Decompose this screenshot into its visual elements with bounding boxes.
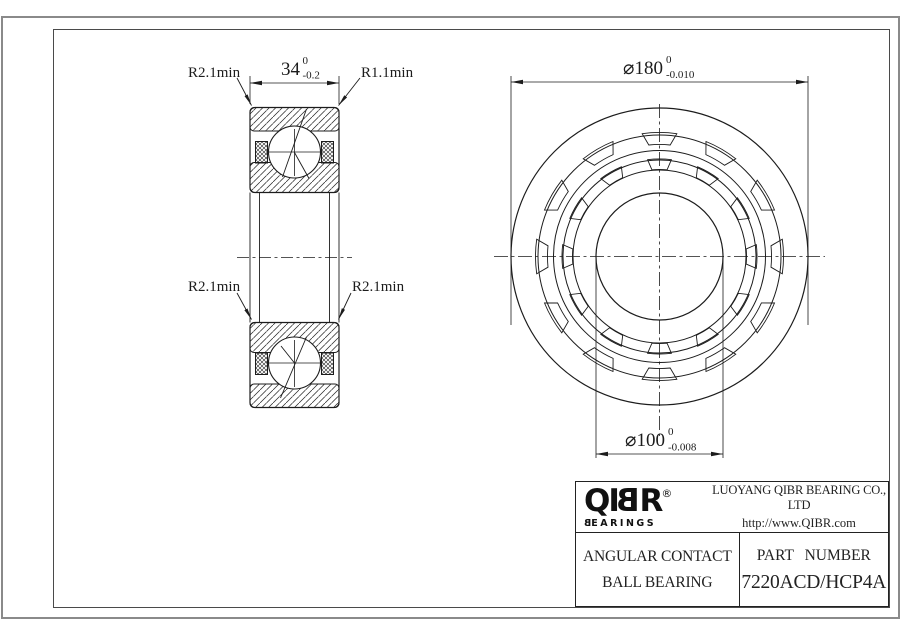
cage-pocket (706, 348, 736, 372)
cage-section-left (256, 142, 268, 164)
cage-pocket (570, 198, 588, 220)
leader-mid-right (339, 293, 352, 320)
cage-pocket (696, 328, 718, 346)
logo-subtitle-letter-mirrored: B (584, 519, 591, 529)
product-name-line1: ANGULAR CONTACT (576, 548, 739, 566)
product-name-line2: BALL BEARING (576, 574, 739, 592)
bore-diameter-value: ⌀100 (625, 430, 665, 451)
cage-pocket (696, 167, 718, 185)
cage-pocket (751, 303, 775, 333)
radius-label-mid-left: R2.1min (188, 279, 241, 295)
logo-letter: Q (584, 483, 608, 519)
section-view (237, 76, 360, 408)
front-view (494, 76, 825, 458)
logo-wordmark: QIBR® (584, 486, 710, 517)
outer-diameter-value: ⌀180 (623, 58, 663, 79)
registered-trademark-symbol: ® (661, 487, 672, 500)
cage-pocket (601, 328, 623, 346)
cage-pocket (731, 198, 749, 220)
cage-pocket (570, 293, 588, 315)
width-tolerance-upper: 0 (303, 55, 309, 67)
title-block: QIBR® BEARINGS LUOYANG QIBR BEARING CO.,… (575, 481, 889, 607)
logo-letter: I (608, 483, 618, 519)
bore-tolerance-lower: -0.008 (668, 442, 697, 454)
cage-pocket (583, 142, 613, 166)
section-top-half (250, 108, 339, 193)
drawing-sheet: 34 0 -0.2 R2.1min R1.1min R2.1min R2.1mi… (0, 0, 900, 636)
company-info: LUOYANG QIBR BEARING CO., LTD http://www… (710, 483, 888, 531)
cage-pocket (583, 348, 613, 372)
company-url: http://www.QIBR.com (710, 516, 888, 531)
title-block-header-row: QIBR® BEARINGS LUOYANG QIBR BEARING CO.,… (576, 482, 888, 533)
outer-diameter-tolerance-upper: 0 (666, 54, 672, 66)
dimension-width (250, 76, 339, 104)
logo-letter: R (640, 483, 662, 519)
radius-label-mid-right: R2.1min (352, 279, 405, 295)
part-number-value: 7220ACD/HCP4A (740, 572, 888, 594)
logo-subtitle-text: EARINGS (591, 518, 656, 529)
cage-pocket (751, 180, 775, 210)
part-number-cell: PART NUMBER 7220ACD/HCP4A (740, 533, 888, 607)
section-bottom-half (250, 323, 339, 408)
company-name: LUOYANG QIBR BEARING CO., LTD (710, 483, 888, 513)
product-description-cell: ANGULAR CONTACT BALL BEARING (576, 533, 740, 607)
bore-tolerance-upper: 0 (668, 426, 674, 438)
logo-subtitle: BEARINGS (584, 519, 710, 529)
cage-pocket (545, 180, 569, 210)
cage-section-right-2 (322, 353, 334, 375)
cage-section-right (322, 142, 334, 164)
cage-pocket (731, 293, 749, 315)
leader-top-right (339, 78, 361, 106)
radius-label-top-right: R1.1min (361, 65, 414, 81)
cage-pocket (706, 142, 736, 166)
width-dimension-value: 34 (281, 59, 301, 80)
radius-label-top-left: R2.1min (188, 65, 241, 81)
outer-diameter-tolerance-lower: -0.010 (666, 69, 695, 81)
leader-mid-left (237, 293, 252, 320)
logo-letter-mirrored: B (618, 486, 640, 517)
company-logo: QIBR® BEARINGS (576, 486, 710, 529)
width-tolerance-lower: -0.2 (303, 70, 320, 82)
leader-top-left (237, 78, 252, 106)
part-number-label: PART NUMBER (740, 547, 888, 565)
title-block-detail-row: ANGULAR CONTACT BALL BEARING PART NUMBER… (576, 533, 888, 607)
cage-pocket (545, 303, 569, 333)
cage-pocket (601, 167, 623, 185)
cage-section-left-2 (256, 353, 268, 375)
